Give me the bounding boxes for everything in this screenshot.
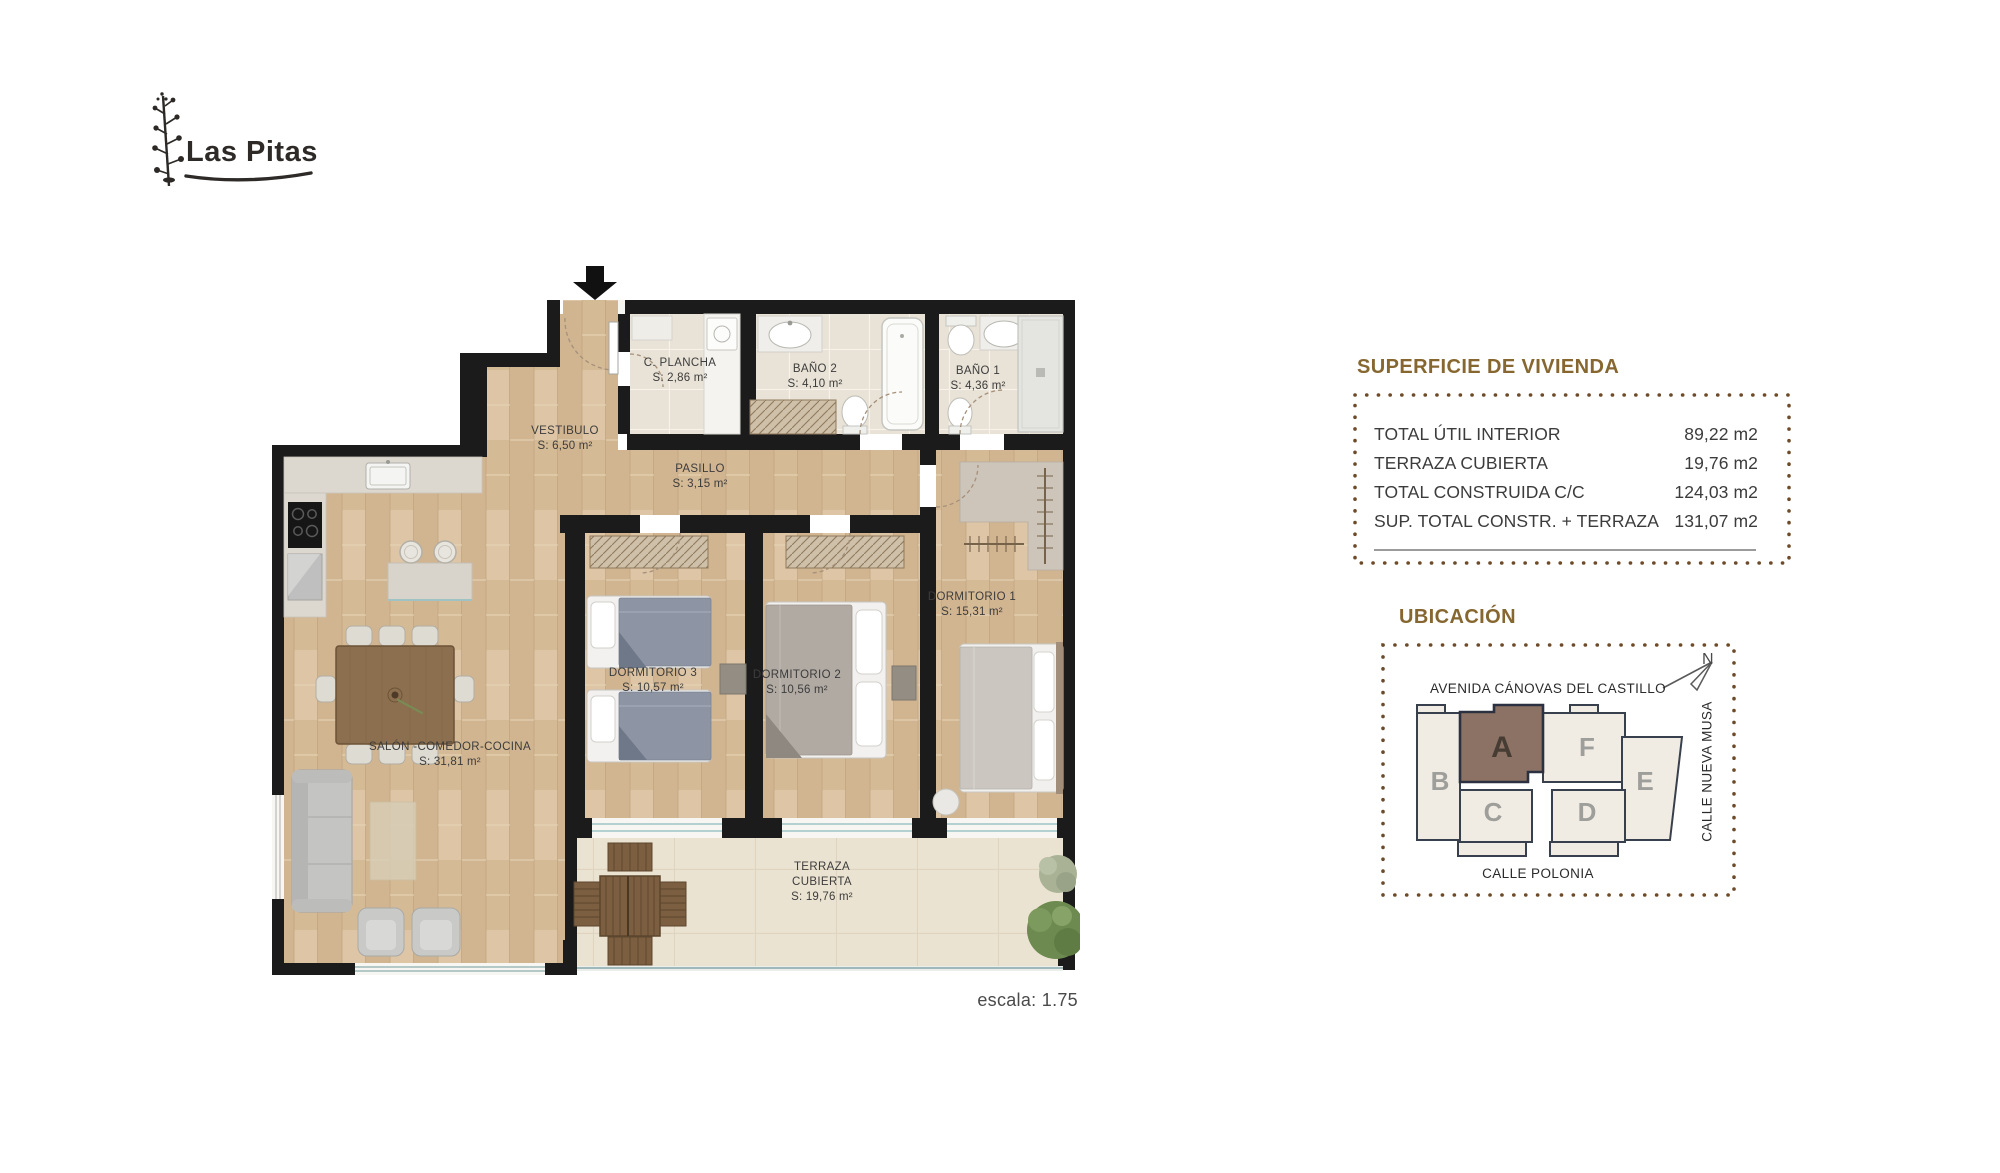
- surface-table: TOTAL ÚTIL INTERIOR89,22 m2 TERRAZA CUBI…: [1374, 420, 1758, 536]
- surface-row: TOTAL CONSTRUIDA C/C124,03 m2: [1374, 478, 1758, 507]
- toilet-icon: [948, 325, 974, 355]
- surface-panel-title: SUPERFICIE DE VIVIENDA: [1357, 356, 1619, 379]
- room-label-c-plancha: C. PLANCHAS: 2,86 m²: [628, 356, 732, 386]
- chair: [933, 789, 959, 815]
- page: Las Pitas: [0, 0, 2000, 1173]
- room-label-dormitorio3: DORMITORIO 3S: 10,57 m²: [580, 666, 726, 696]
- unit-label-b: B: [1425, 766, 1455, 797]
- room-label-bano2: BAÑO 2S: 4,10 m²: [765, 362, 865, 392]
- unit-label-d: D: [1572, 797, 1602, 828]
- entry-door-leaf: [609, 322, 618, 374]
- wardrobe: [590, 536, 708, 568]
- unit-label-a: A: [1487, 731, 1517, 765]
- rug: [370, 802, 416, 880]
- headboard: [1056, 642, 1063, 794]
- surface-row: TERRAZA CUBIERTA19,76 m2: [1374, 449, 1758, 478]
- room-label-dormitorio2: DORMITORIO 2S: 10,56 m²: [724, 668, 870, 698]
- street-label-avenida: AVENIDA CÁNOVAS DEL CASTILLO: [1402, 681, 1694, 696]
- north-label: N: [1702, 651, 1714, 669]
- entry-arrow: [573, 266, 617, 300]
- surface-panel-separator: [1374, 549, 1756, 551]
- street-label-nueva-musa: CALLE NUEVA MUSA: [1700, 677, 1715, 867]
- hall-wardrobe: [750, 400, 836, 434]
- unit-label-e: E: [1630, 766, 1660, 797]
- room-label-pasillo: PASILLOS: 3,15 m²: [650, 462, 750, 492]
- terrace-table: [600, 876, 660, 936]
- room-label-terraza: TERRAZA CUBIERTA S: 19,76 m²: [762, 860, 882, 906]
- street-label-polonia: CALLE POLONIA: [1436, 866, 1640, 881]
- room-label-vestibulo: VESTIBULOS: 6,50 m²: [507, 424, 623, 454]
- scale-note: escala: 1.75: [880, 990, 1078, 1011]
- surface-row: TOTAL ÚTIL INTERIOR89,22 m2: [1374, 420, 1758, 449]
- room-label-bano1: BAÑO 1S: 4,36 m²: [926, 364, 1030, 394]
- brand-name: Las Pitas: [186, 136, 318, 169]
- nightstand: [892, 666, 916, 700]
- unit-label-f: F: [1572, 732, 1602, 763]
- bidet-icon: [948, 398, 972, 428]
- washer-icon: [707, 318, 737, 350]
- location-panel-title: UBICACIÓN: [1399, 606, 1516, 629]
- cooktop-icon: [288, 502, 322, 548]
- brand-logo: Las Pitas: [140, 88, 340, 188]
- wardrobe: [786, 536, 904, 568]
- toilet-icon: [842, 396, 868, 428]
- room-label-salon: SALÓN -COMEDOR-COCINAS: 31,81 m²: [340, 740, 560, 770]
- brand-underline-swoosh: [183, 168, 315, 186]
- washbasin-icon: [769, 322, 811, 348]
- room-label-dormitorio1: DORMITORIO 1S: 15,31 m²: [899, 590, 1045, 620]
- surface-row: SUP. TOTAL CONSTR. + TERRAZA131,07 m2: [1374, 507, 1758, 536]
- unit-label-c: C: [1478, 797, 1508, 828]
